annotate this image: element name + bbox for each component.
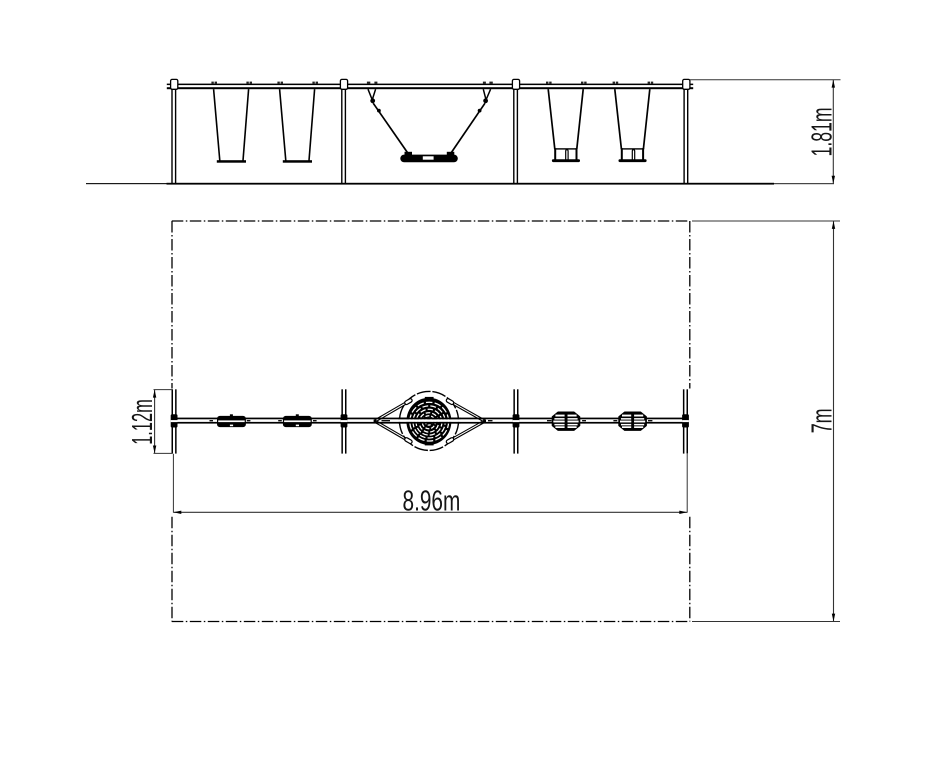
svg-text:7m: 7m — [806, 408, 838, 433]
svg-text:1.12m: 1.12m — [126, 399, 158, 445]
svg-text:1.81m: 1.81m — [807, 107, 838, 156]
svg-text:8.96m: 8.96m — [403, 485, 461, 517]
